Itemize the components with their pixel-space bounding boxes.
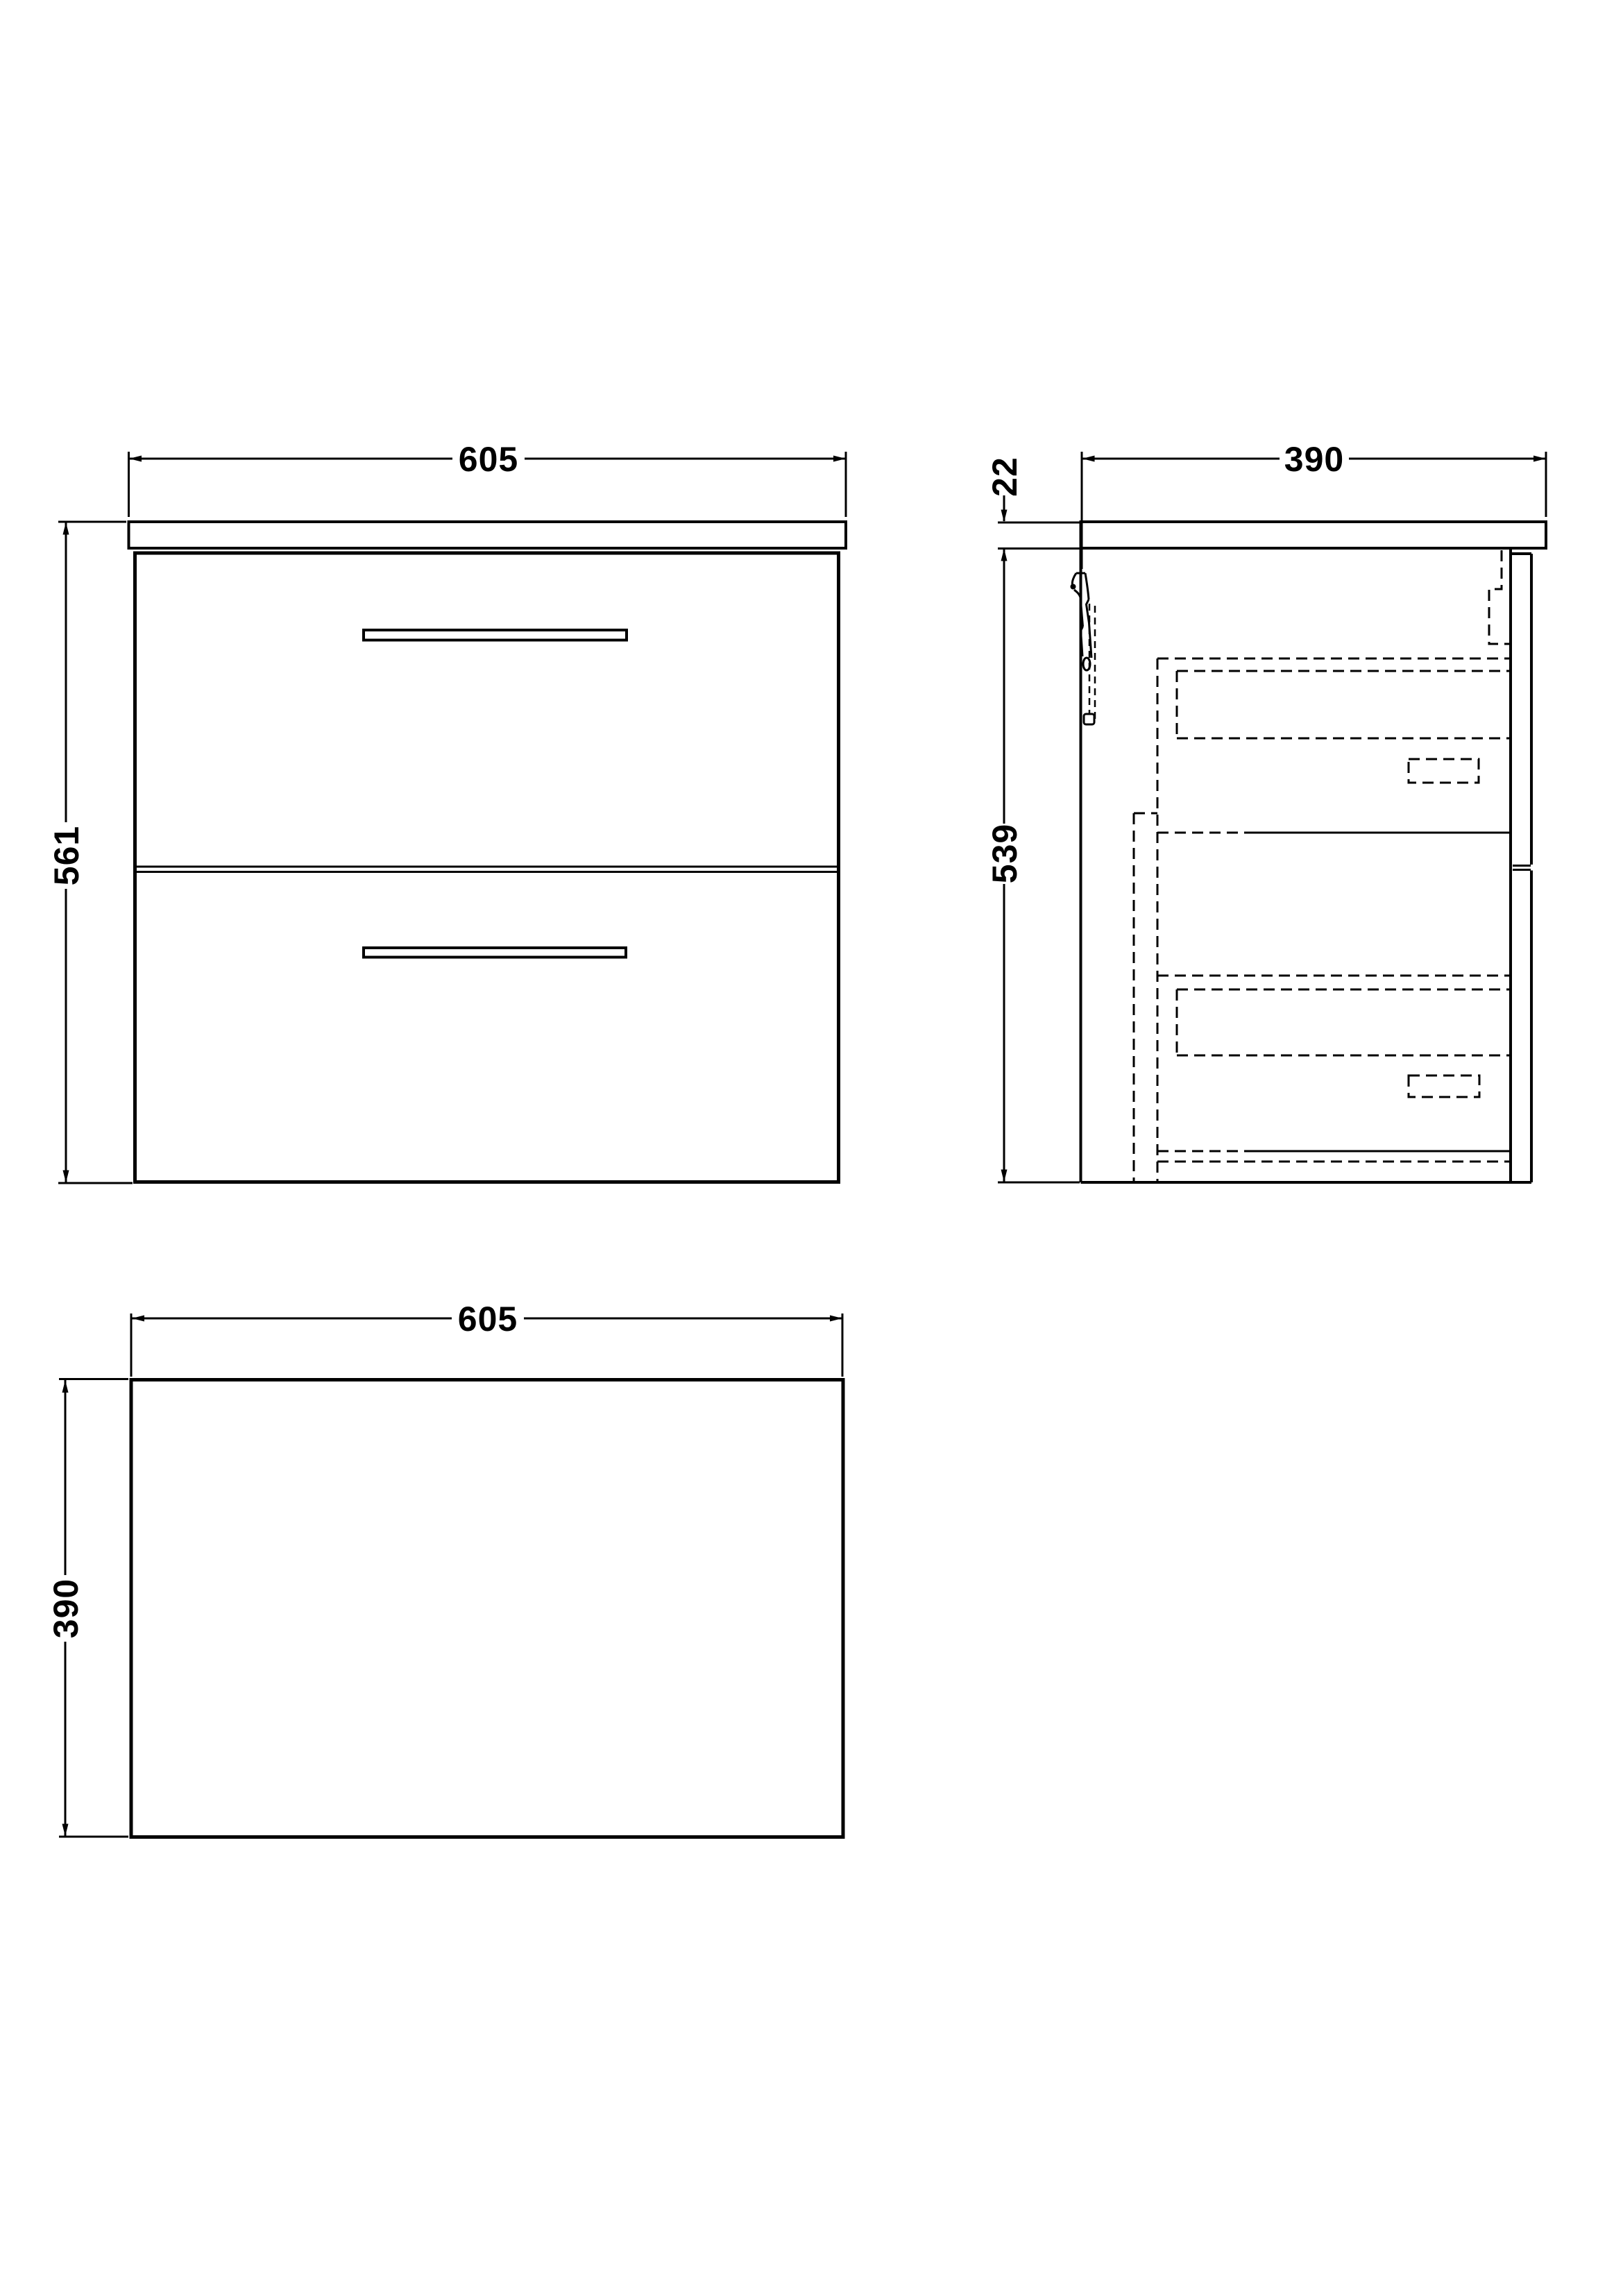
svg-text:539: 539 — [985, 824, 1024, 883]
svg-text:605: 605 — [458, 1300, 518, 1338]
svg-text:605: 605 — [459, 440, 518, 479]
svg-text:22: 22 — [985, 457, 1024, 497]
svg-text:390: 390 — [1284, 440, 1344, 479]
svg-text:561: 561 — [47, 826, 86, 885]
svg-text:390: 390 — [46, 1579, 85, 1638]
